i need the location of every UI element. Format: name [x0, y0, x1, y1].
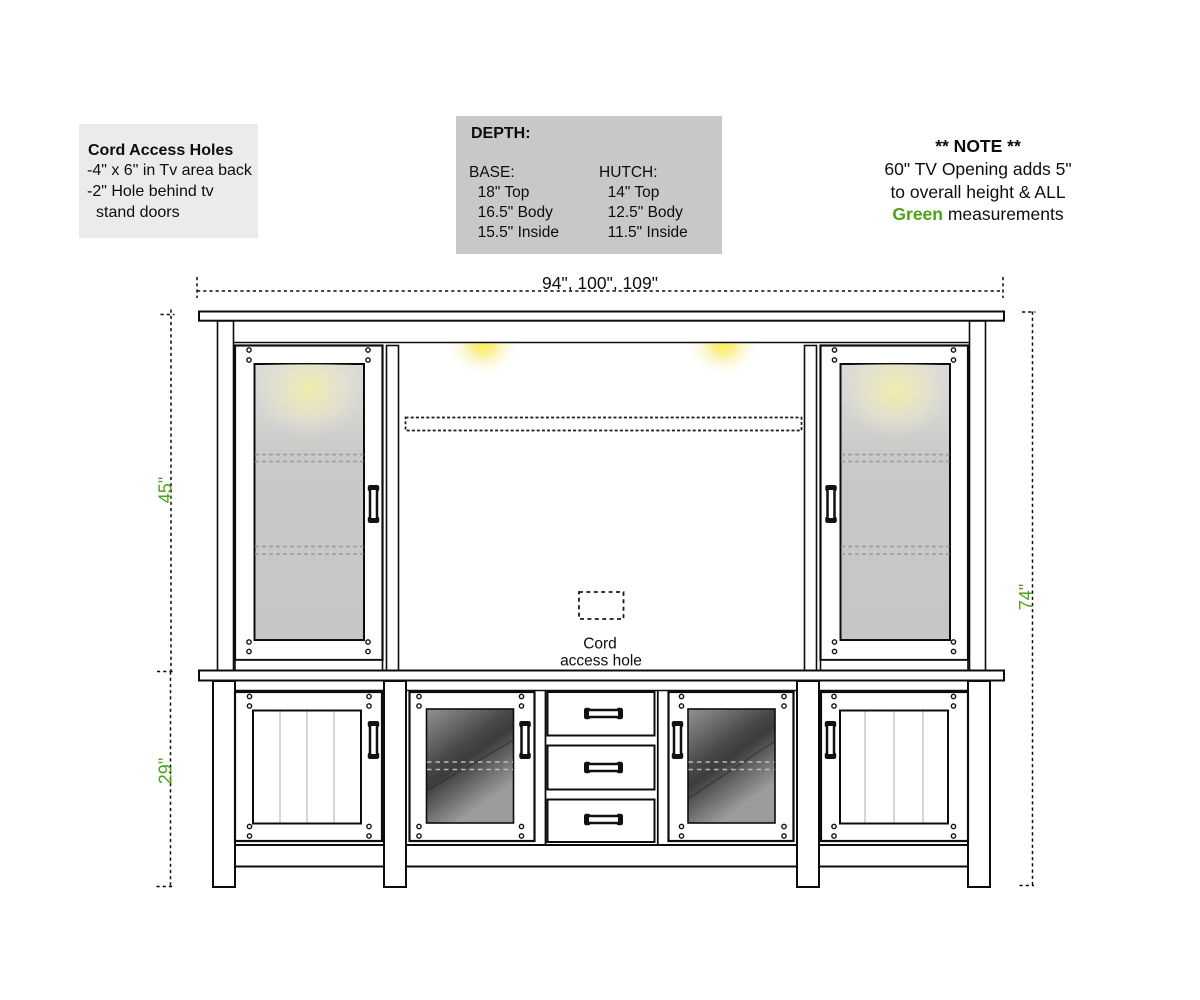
svg-text:45": 45" — [156, 477, 176, 503]
svg-text:94", 100", 109": 94", 100", 109" — [542, 273, 658, 293]
svg-text:Cord: Cord — [583, 636, 617, 653]
svg-text:29": 29" — [156, 758, 176, 784]
svg-text:74": 74" — [1016, 584, 1036, 610]
svg-text:access hole: access hole — [560, 653, 642, 670]
